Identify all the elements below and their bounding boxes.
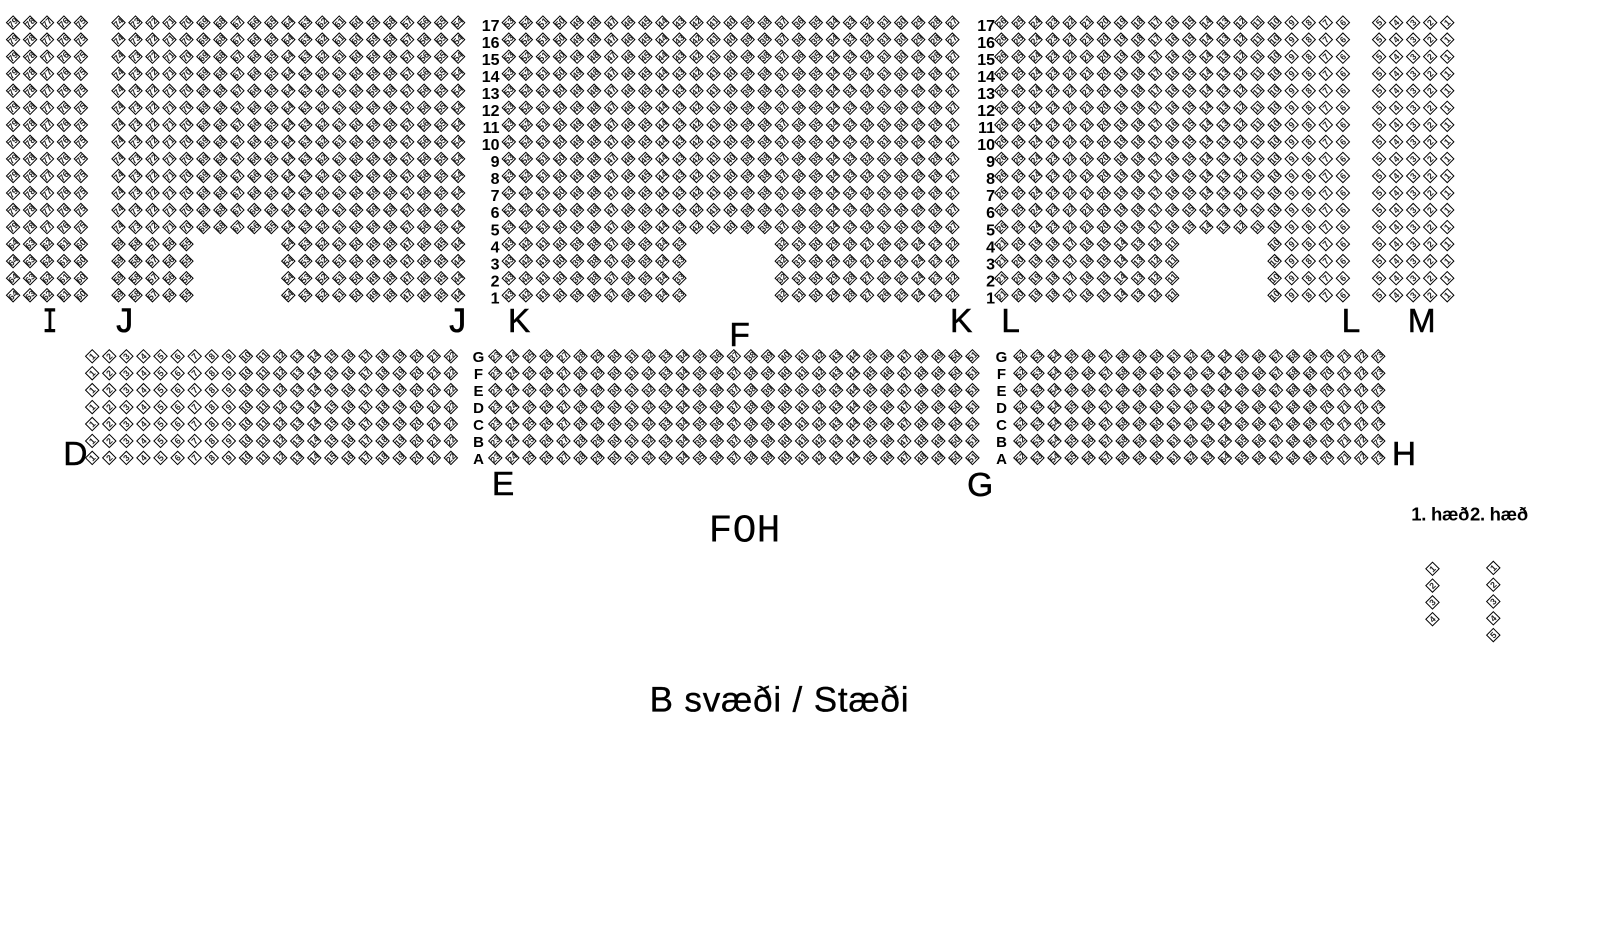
svg-text:D: D <box>63 436 87 473</box>
svg-text:F: F <box>729 317 749 354</box>
svg-text:2: 2 <box>986 273 995 290</box>
svg-text:G: G <box>967 467 993 504</box>
svg-text:1: 1 <box>491 290 500 307</box>
svg-text:11: 11 <box>483 120 500 137</box>
svg-text:6: 6 <box>491 205 500 222</box>
svg-text:3: 3 <box>491 256 500 273</box>
svg-text:G: G <box>996 349 1008 366</box>
svg-text:E: E <box>996 383 1006 400</box>
svg-text:A: A <box>473 451 484 468</box>
svg-text:J: J <box>114 303 135 343</box>
svg-text:J: J <box>447 303 468 343</box>
svg-text:5: 5 <box>986 222 995 239</box>
svg-text:H: H <box>1392 436 1416 473</box>
svg-text:K: K <box>508 303 530 340</box>
svg-text:I: I <box>42 303 57 343</box>
svg-text:4: 4 <box>491 239 500 256</box>
svg-text:L: L <box>1001 303 1020 340</box>
svg-text:9: 9 <box>491 154 500 171</box>
svg-text:10: 10 <box>977 137 995 154</box>
svg-text:2. hæð: 2. hæð <box>1470 504 1528 525</box>
svg-text:K: K <box>950 303 972 340</box>
svg-text:D: D <box>473 400 484 417</box>
svg-text:A: A <box>996 451 1007 468</box>
svg-text:17: 17 <box>482 18 500 35</box>
svg-text:12: 12 <box>977 103 995 120</box>
svg-text:E: E <box>492 466 514 503</box>
svg-text:16: 16 <box>977 35 995 52</box>
svg-text:14: 14 <box>977 69 995 86</box>
svg-text:F: F <box>997 366 1006 383</box>
svg-text:13: 13 <box>977 86 995 103</box>
svg-text:C: C <box>473 417 484 434</box>
svg-text:10: 10 <box>482 137 500 154</box>
svg-text:9: 9 <box>986 154 995 171</box>
svg-text:12: 12 <box>482 103 500 120</box>
svg-text:C: C <box>996 417 1007 434</box>
svg-text:B: B <box>996 434 1007 451</box>
svg-text:M: M <box>1408 303 1436 340</box>
svg-text:3: 3 <box>986 256 995 273</box>
svg-text:17: 17 <box>977 18 995 35</box>
svg-text:D: D <box>996 400 1007 417</box>
svg-text:16: 16 <box>482 35 500 52</box>
svg-text:7: 7 <box>986 188 995 205</box>
svg-text:11: 11 <box>978 120 995 137</box>
svg-text:E: E <box>473 383 483 400</box>
svg-text:4: 4 <box>986 239 995 256</box>
svg-text:13: 13 <box>482 86 500 103</box>
svg-text:B: B <box>473 434 484 451</box>
svg-text:L: L <box>1342 303 1361 340</box>
svg-text:1: 1 <box>986 290 995 307</box>
svg-text:15: 15 <box>482 52 500 69</box>
svg-text:14: 14 <box>482 69 500 86</box>
svg-text:6: 6 <box>986 205 995 222</box>
svg-text:FOH: FOH <box>709 509 781 554</box>
svg-text:2: 2 <box>491 273 500 290</box>
svg-text:1. hæð: 1. hæð <box>1411 504 1469 525</box>
svg-text:F: F <box>474 366 483 383</box>
svg-text:7: 7 <box>491 188 500 205</box>
svg-text:G: G <box>473 349 485 366</box>
svg-text:8: 8 <box>986 171 995 188</box>
svg-text:5: 5 <box>491 222 500 239</box>
svg-text:15: 15 <box>977 52 995 69</box>
svg-text:B svæði / Stæði: B svæði / Stæði <box>650 681 910 720</box>
svg-text:8: 8 <box>491 171 500 188</box>
